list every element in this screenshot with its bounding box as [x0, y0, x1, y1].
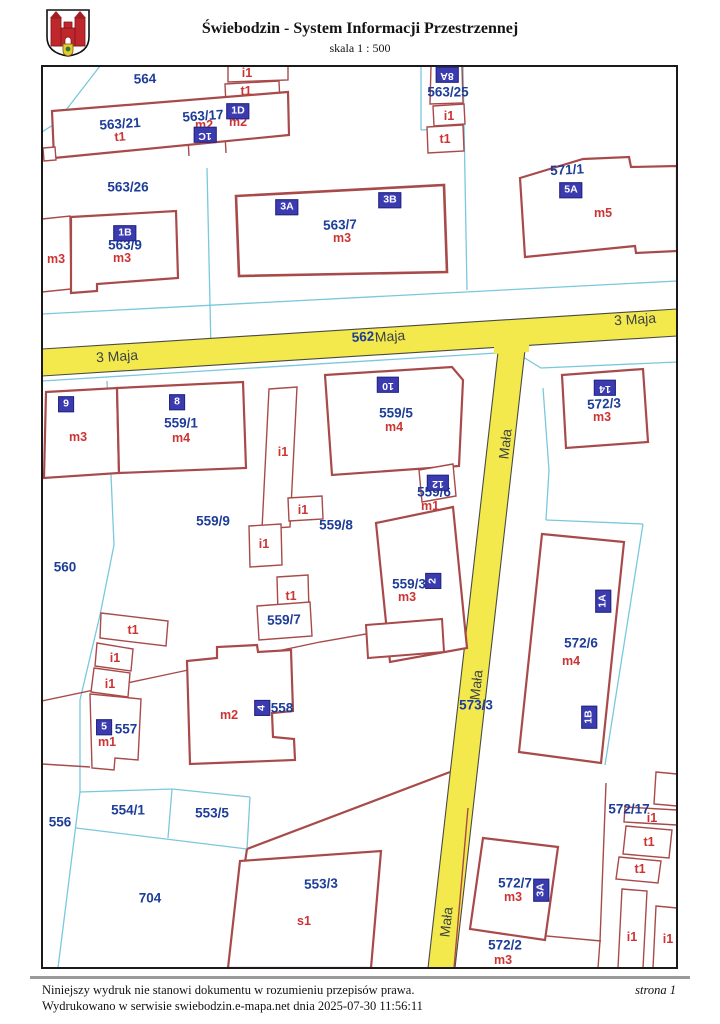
building-563-21: [52, 92, 289, 158]
buildings: [42, 66, 677, 968]
building-i1-563-25: [433, 104, 465, 126]
cadastral-map: [0, 0, 720, 1024]
building-557: [90, 694, 141, 770]
building-t1-left: [100, 613, 168, 646]
building-572-17-top: [654, 772, 677, 806]
building-559-6: [419, 464, 456, 502]
building-572-3: [562, 369, 648, 448]
building-571-1: [520, 157, 677, 257]
building-8a: [430, 66, 463, 104]
building-559-7: [257, 602, 312, 640]
building-558: [187, 645, 295, 764]
footer-separator: [30, 976, 690, 979]
footer-disclaimer: Niniejszy wydruk nie stanowi dokumentu w…: [42, 983, 415, 998]
building-572-7: [470, 838, 558, 940]
road-junction: [494, 341, 529, 354]
building-572-17-t1b: [616, 857, 661, 883]
building-563-21-cap: [43, 147, 56, 161]
building-i1-b: [249, 524, 282, 567]
building-i1-bottom1: [618, 889, 647, 968]
page-number: strona 1: [635, 983, 676, 998]
building-572-17-t1a: [623, 826, 672, 858]
building-563-9: [71, 211, 178, 293]
building-i1-a: [288, 496, 323, 521]
building-563-7: [236, 185, 447, 276]
building-9: [44, 388, 119, 478]
building-roadside: [366, 619, 444, 658]
building-i1-left1: [95, 643, 133, 671]
building-572-6: [519, 534, 624, 763]
footer-print-info: Wydrukowano w serwisie swiebodzin.e-mapa…: [42, 999, 423, 1014]
building-553-3: [228, 851, 381, 968]
building-i1-left2: [91, 668, 130, 697]
building-572-17-i1: [624, 807, 677, 825]
building-m3-left: [42, 216, 71, 292]
building-i1-top: [228, 66, 288, 82]
building-559-1: [117, 382, 246, 473]
building-t1-563-25: [427, 125, 464, 153]
building-559-5: [325, 367, 463, 475]
printout-page: Świebodzin - System Informacji Przestrze…: [0, 0, 720, 1024]
building-i1-bottom2: [653, 906, 677, 968]
